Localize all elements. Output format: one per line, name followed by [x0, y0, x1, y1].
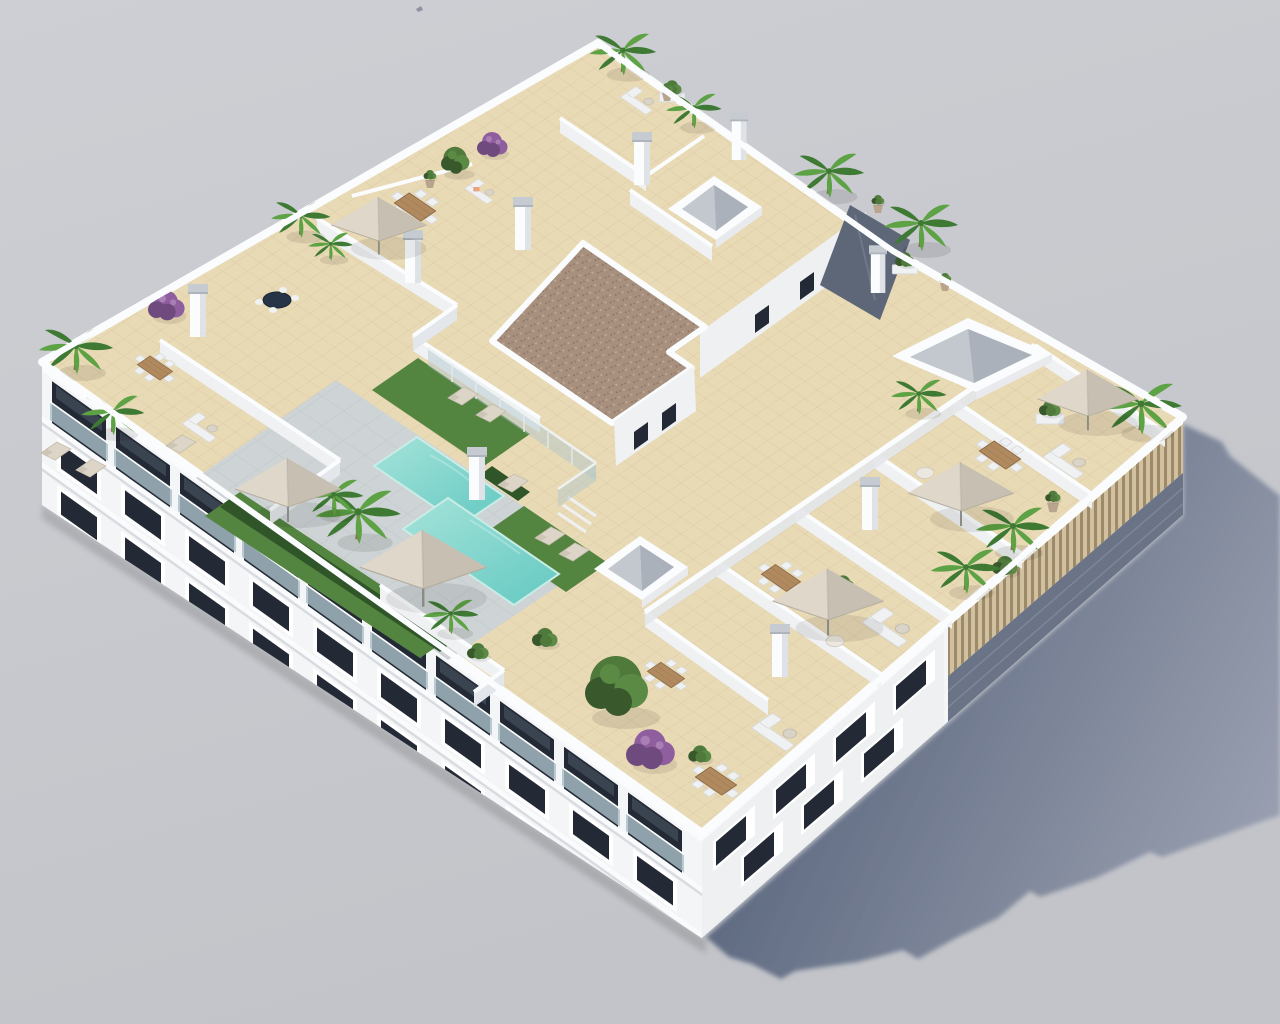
building-render — [0, 0, 1280, 1024]
render-canvas — [0, 0, 1280, 1024]
side-table — [916, 468, 934, 479]
